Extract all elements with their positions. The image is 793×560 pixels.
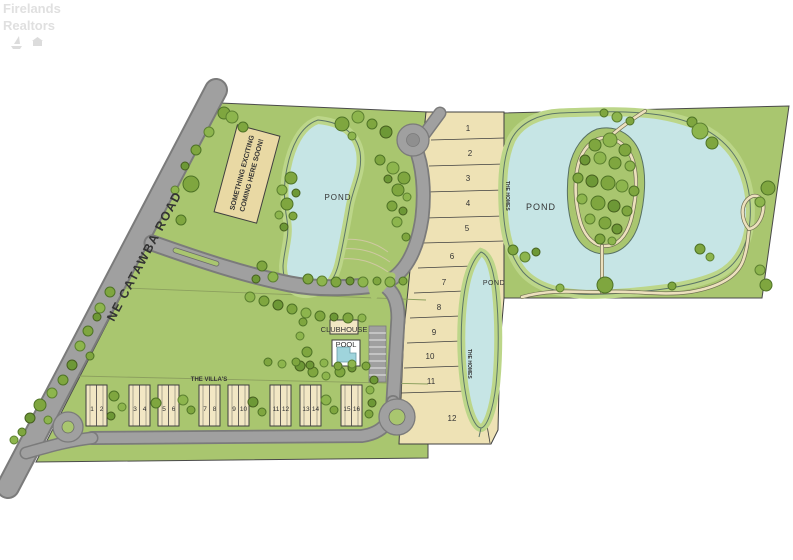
clubhouse-label: CLUBHOUSE	[321, 325, 368, 334]
tree-icon	[58, 375, 68, 385]
villa-unit-number: 13	[302, 406, 310, 413]
tree-icon	[403, 193, 411, 201]
tree-icon	[348, 132, 356, 140]
villa-unit-number: 4	[143, 406, 147, 413]
tree-icon	[608, 200, 620, 212]
watermark-mark-icon	[32, 37, 43, 46]
tree-icon	[299, 318, 307, 326]
tree-icon	[281, 198, 293, 210]
tree-icon	[183, 176, 199, 192]
tree-icon	[594, 152, 606, 164]
tree-icon	[83, 326, 93, 336]
tree-icon	[296, 332, 304, 340]
tree-icon	[362, 362, 370, 370]
villa-unit-number: 14	[312, 406, 320, 413]
tree-icon	[178, 395, 188, 405]
tree-icon	[387, 162, 399, 174]
tree-icon	[595, 234, 605, 244]
tree-icon	[760, 279, 772, 291]
tree-icon	[93, 313, 101, 321]
villa-unit-number: 2	[100, 406, 104, 413]
tree-icon	[399, 207, 407, 215]
tree-icon	[695, 244, 705, 254]
tree-icon	[289, 212, 297, 220]
lot-number: 4	[466, 199, 471, 208]
tree-icon	[626, 117, 634, 125]
tree-icon	[599, 217, 611, 229]
tree-icon	[204, 127, 214, 137]
tree-icon	[268, 272, 278, 282]
tree-icon	[301, 308, 311, 318]
tree-icon	[380, 126, 392, 138]
tree-icon	[334, 362, 342, 370]
tree-icon	[348, 360, 356, 368]
tree-icon	[95, 303, 105, 313]
the-homes-upper-label: THE HOMES	[504, 181, 510, 211]
tree-icon	[10, 436, 18, 444]
lot-number: 3	[466, 174, 471, 183]
tree-icon	[245, 292, 255, 302]
villa-unit-number: 3	[133, 406, 137, 413]
villa-building-1-2	[86, 385, 107, 426]
villa-unit-number: 15	[343, 406, 351, 413]
tree-icon	[597, 277, 613, 293]
tree-icon	[303, 274, 313, 284]
tree-icon	[619, 144, 631, 156]
tree-icon	[278, 360, 286, 368]
tree-icon	[612, 224, 622, 234]
tree-icon	[259, 296, 269, 306]
tree-icon	[109, 391, 119, 401]
tree-icon	[105, 287, 115, 297]
tree-icon	[520, 252, 530, 262]
tree-icon	[320, 359, 328, 367]
watermark-line-2: Realtors	[3, 18, 55, 33]
watermark-boat-icon	[11, 36, 22, 49]
villa-building-3-4	[129, 385, 150, 426]
tree-icon	[577, 194, 587, 204]
tree-icon	[589, 139, 601, 151]
villa-unit-number: 1	[90, 406, 94, 413]
tree-icon	[366, 386, 374, 394]
villa-unit-number: 9	[232, 406, 236, 413]
tree-icon	[706, 137, 718, 149]
tree-icon	[585, 214, 595, 224]
tree-icon	[358, 314, 366, 322]
tree-icon	[629, 186, 639, 196]
lot-number: 8	[437, 303, 442, 312]
tree-icon	[191, 145, 201, 155]
tree-icon	[612, 112, 622, 122]
tree-icon	[609, 157, 621, 169]
tree-icon	[761, 181, 775, 195]
tree-icon	[580, 155, 590, 165]
lot-number: 6	[450, 252, 455, 261]
tree-icon	[306, 361, 314, 369]
tree-icon	[373, 277, 381, 285]
tree-icon	[668, 282, 676, 290]
tree-icon	[34, 399, 46, 411]
tree-icon	[601, 176, 615, 190]
lot-number: 11	[427, 377, 436, 386]
tree-icon	[44, 416, 52, 424]
clubhouse-parking	[369, 326, 386, 382]
tree-icon	[330, 406, 338, 414]
tree-icon	[755, 265, 765, 275]
tree-icon	[47, 388, 57, 398]
tree-icon	[292, 189, 300, 197]
lot-number: 10	[426, 352, 435, 361]
villa-unit-number: 8	[213, 406, 217, 413]
tree-icon	[370, 376, 378, 384]
tree-icon	[625, 161, 635, 171]
site-plan-map: SOMETHING EXCITING COMING HERE SOON!	[0, 0, 793, 560]
tree-icon	[107, 412, 115, 420]
tree-icon	[365, 410, 373, 418]
tree-icon	[603, 133, 617, 147]
villa-unit-number: 12	[282, 406, 290, 413]
tree-icon	[315, 311, 325, 321]
tree-icon	[399, 277, 407, 285]
tree-icon	[375, 155, 385, 165]
tree-icon	[257, 261, 267, 271]
pond-right-label: POND	[526, 202, 556, 212]
tree-icon	[616, 180, 628, 192]
villa-unit-number: 16	[353, 406, 361, 413]
tree-icon	[384, 175, 392, 183]
tree-icon	[238, 122, 248, 132]
tree-icon	[398, 172, 410, 184]
pond-middle-label: POND	[483, 280, 505, 287]
tree-icon	[385, 277, 395, 287]
tree-icon	[248, 397, 258, 407]
tree-icon	[367, 119, 377, 129]
pool-label: POOL	[336, 340, 357, 349]
tree-icon	[573, 173, 583, 183]
tree-icon	[392, 217, 402, 227]
pond-left-label: POND	[324, 193, 351, 202]
tree-icon	[18, 428, 26, 436]
lot-number: 1	[466, 124, 471, 133]
tree-icon	[622, 206, 632, 216]
villa-unit-number: 7	[203, 406, 207, 413]
villa-building-7-8	[199, 385, 220, 426]
tree-icon	[280, 223, 288, 231]
tree-icon	[591, 196, 605, 210]
tree-icon	[264, 358, 272, 366]
tree-icon	[706, 253, 714, 261]
tree-icon	[358, 277, 368, 287]
lot-number: 9	[432, 328, 437, 337]
tree-icon	[118, 403, 126, 411]
tree-icon	[322, 372, 330, 380]
tree-icon	[187, 406, 195, 414]
tree-icon	[331, 277, 341, 287]
tree-icon	[346, 277, 354, 285]
tree-icon	[258, 408, 266, 416]
tree-icon	[176, 215, 186, 225]
villa-building-5-6	[158, 385, 179, 426]
tree-icon	[275, 211, 283, 219]
lot-number: 7	[442, 278, 447, 287]
tree-icon	[321, 395, 331, 405]
tree-icon	[368, 399, 376, 407]
villas-label: THE VILLA'S	[191, 377, 227, 383]
tree-icon	[608, 237, 616, 245]
villa-unit-number: 6	[172, 406, 176, 413]
villa-unit-number: 5	[162, 406, 166, 413]
the-homes-lower-label: THE HOMES	[466, 349, 472, 379]
tree-icon	[532, 248, 540, 256]
tree-icon	[352, 111, 364, 123]
watermark: Firelands Realtors	[3, 1, 61, 49]
tree-icon	[556, 284, 564, 292]
tree-icon	[402, 233, 410, 241]
tree-icon	[755, 197, 765, 207]
villa-unit-number: 11	[273, 406, 280, 413]
tree-icon	[330, 313, 338, 321]
tree-icon	[181, 162, 189, 170]
tree-icon	[151, 398, 161, 408]
watermark-line-1: Firelands	[3, 1, 61, 16]
tree-icon	[302, 347, 312, 357]
tree-icon	[285, 172, 297, 184]
tree-icon	[226, 111, 238, 123]
tree-icon	[343, 313, 353, 323]
tree-icon	[273, 300, 283, 310]
tree-icon	[67, 360, 77, 370]
tree-icon	[86, 352, 94, 360]
tree-icon	[508, 245, 518, 255]
tree-icon	[277, 185, 287, 195]
tree-icon	[600, 109, 608, 117]
lot-number: 2	[468, 149, 473, 158]
tree-icon	[317, 276, 327, 286]
tree-icon	[692, 123, 708, 139]
tree-icon	[25, 413, 35, 423]
tree-icon	[75, 341, 85, 351]
tree-icon	[335, 117, 349, 131]
tree-icon	[287, 304, 297, 314]
tree-icon	[586, 175, 598, 187]
tree-icon	[292, 358, 300, 366]
tree-icon	[387, 201, 397, 211]
villa-unit-number: 10	[240, 406, 248, 413]
lot-number: 12	[448, 414, 457, 423]
lot-number: 5	[465, 224, 470, 233]
tree-icon	[392, 184, 404, 196]
tree-icon	[252, 275, 260, 283]
